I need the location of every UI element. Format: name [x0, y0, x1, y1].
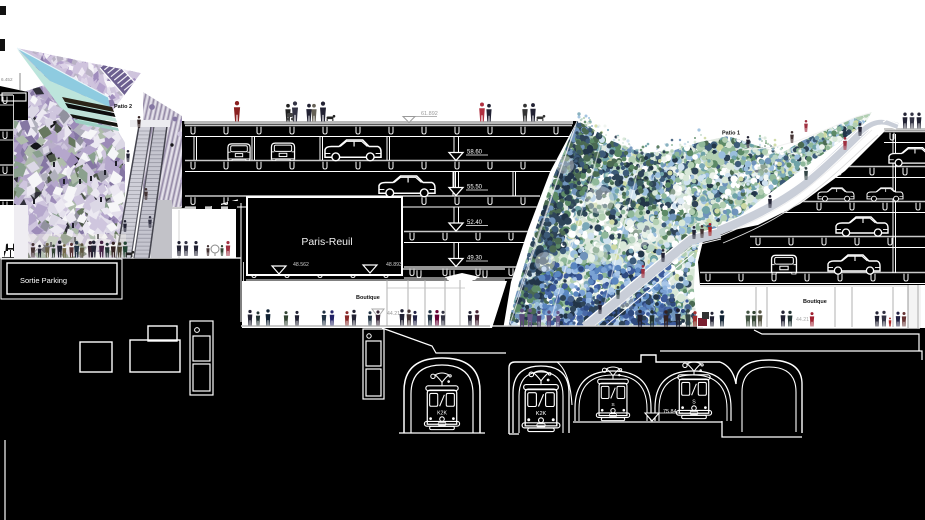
svg-text:Paris-Reuil: Paris-Reuil [301, 236, 352, 248]
svg-text:48.893: 48.893 [386, 262, 402, 268]
svg-text:48.562: 48.562 [293, 262, 309, 268]
